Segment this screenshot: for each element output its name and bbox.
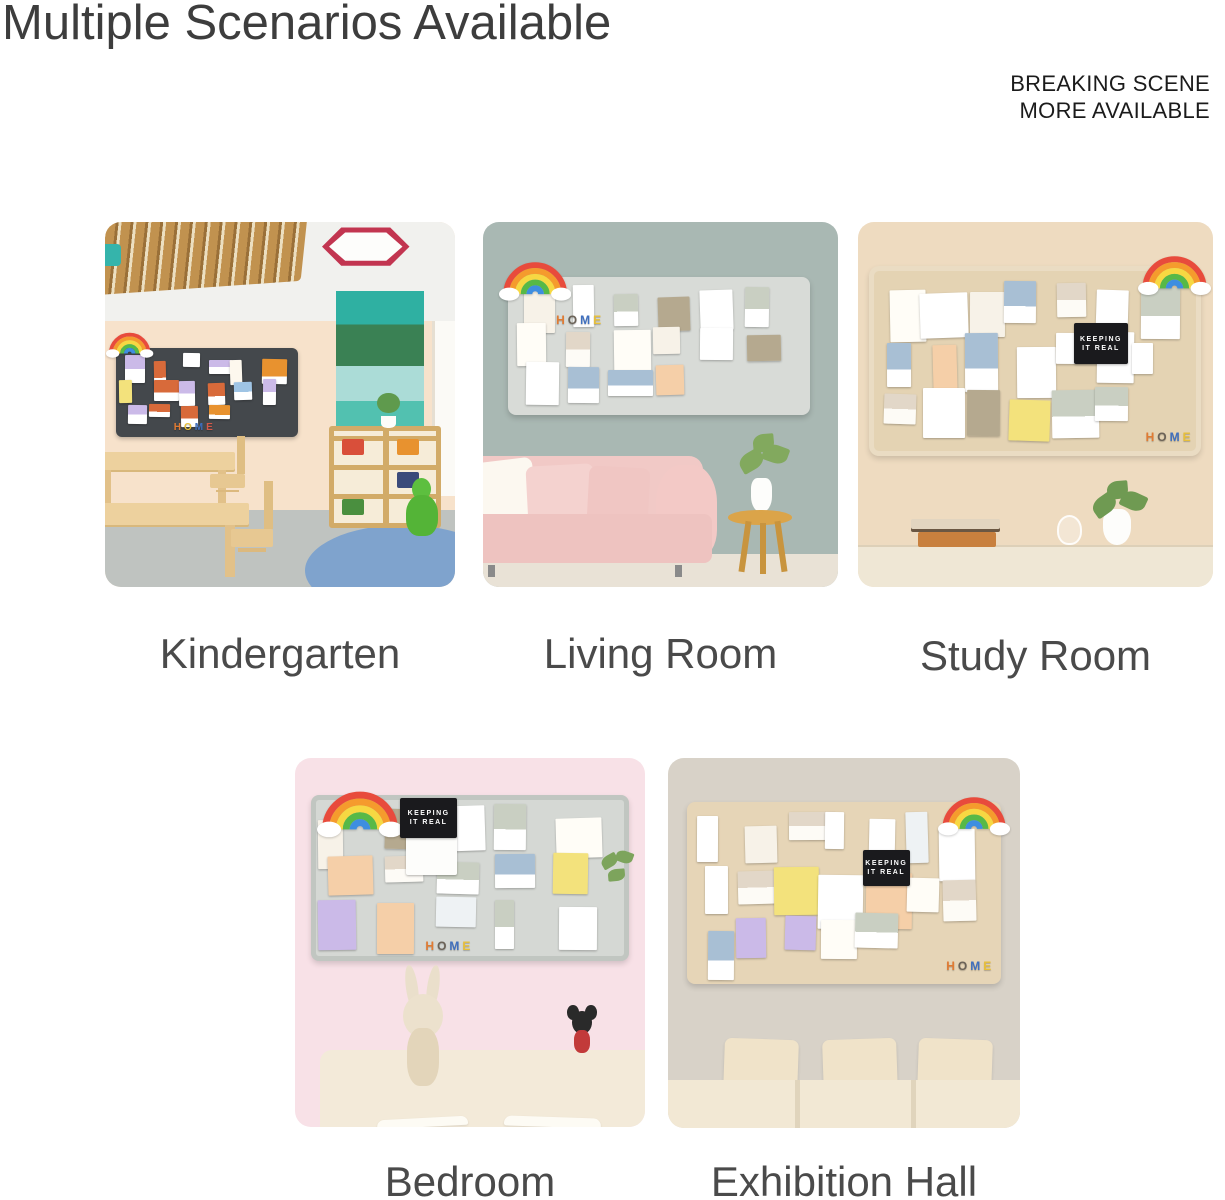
plant-leaf [608,869,626,882]
pinned-card [526,362,560,405]
toy-car-red [342,439,364,455]
sofa-seat [483,514,712,563]
shelf-divider [383,431,389,522]
sofa-leg [675,565,682,577]
pinned-card [1132,343,1153,374]
pinned-card [965,333,998,392]
desk-surface [858,545,1213,587]
pinned-card [183,353,200,367]
pinned-card [517,323,547,366]
pinned-card [907,877,940,912]
potted-plant [375,406,403,428]
white-pillow [504,1115,602,1127]
bunny-body [407,1028,439,1086]
pinned-card [179,381,195,407]
kids-table [105,503,249,525]
pinned-card [566,332,590,368]
plant-sprig [601,851,639,891]
pinned-card [493,803,526,849]
rainbow-icon [938,790,1010,836]
pinned-card [887,343,911,387]
felt-pin-board: H O M E [116,348,298,437]
scene-label-bedroom: Bedroom [295,1158,645,1200]
pinned-card [1004,281,1036,324]
rainbow-icon [106,328,153,358]
chair-back [264,481,273,528]
pinned-card [939,828,976,881]
white-vase [751,478,772,513]
pinned-card [318,900,357,950]
pink-sofa [483,456,703,573]
toy-car-orange [397,439,419,455]
kids-chair [210,474,245,489]
pinned-card [495,900,514,949]
scene-label-living-room: Living Room [483,630,838,678]
corner-note-line1: BREAKING SCENE [1010,70,1210,97]
white-pillow [376,1115,467,1127]
pinned-card [658,296,691,331]
plant-pot [381,416,397,428]
pinned-card [154,380,179,401]
rainbow-icon [499,255,571,301]
pinned-card [125,355,145,383]
pinned-card [614,330,651,372]
keeping-it-real-card: KEEPING IT REAL [863,850,910,886]
corner-note: BREAKING SCENE MORE AVAILABLE [1010,70,1210,124]
plant-leaves [377,393,399,413]
kids-table [105,452,235,470]
product-collage: Multiple Scenarios Available BREAKING SC… [0,0,1225,1200]
plant-leaf [614,849,634,866]
pinned-card [263,379,276,405]
pinned-card [744,287,769,327]
felt-pin-board: KEEPING IT REAL H O M E [869,266,1201,456]
pinned-card [655,365,684,396]
pinned-card [652,327,679,354]
pinned-card [738,871,777,905]
pinned-card [1095,386,1128,420]
home-letters: H O M E [556,313,601,327]
hexagon-light-inner [329,232,403,260]
pinned-card [942,879,976,921]
book-stack [911,519,1000,532]
pinned-card [923,388,965,438]
pinned-card [735,917,766,958]
pinned-card [1057,283,1086,318]
scene-photo-living-room: H O M E [483,222,838,587]
scene-photo-kindergarten: H O M E [105,222,455,587]
home-letters: H O M E [425,939,470,953]
keeping-it-real-card: KEEPING IT REAL [1074,323,1127,365]
pinned-card [119,380,133,403]
home-letters: H O M E [1146,430,1191,444]
scene-photo-exhibition-hall: KEEPING IT REAL H O M E [668,758,1020,1128]
pinned-card [209,405,230,420]
pinned-card [1141,288,1181,339]
cream-sofa [668,1080,1020,1128]
scene-photo-bedroom: KEEPING IT REAL H O M E [295,758,645,1127]
sofa-leg [488,565,495,577]
pinned-card [855,913,899,949]
glass-ornament [1057,515,1082,545]
book-stack [918,532,996,547]
felt-pin-board: KEEPING IT REAL H O M E [311,795,630,961]
scene-photo-study-room: KEEPING IT REAL H O M E [858,222,1213,587]
bunny-plush [397,965,450,1087]
table-leg [760,523,766,574]
rainbow-icon [1138,249,1211,296]
pinned-card [970,292,1005,337]
pinned-card [608,370,653,396]
pinned-card [435,897,476,928]
bed-headboard [320,1050,646,1127]
pinned-card [708,931,735,980]
mouse-plush [565,1005,600,1053]
toy-car-green [342,499,364,515]
pinned-card [824,812,844,849]
pinned-card [553,853,589,895]
chair-back [237,436,245,474]
pinned-card [1008,399,1050,441]
sofa-seam [795,1080,799,1128]
pinned-card [127,405,146,424]
pinned-card [568,366,599,402]
pinned-card [744,825,777,862]
pinned-card [614,294,638,327]
pinned-card [705,866,728,914]
felt-pin-board: KEEPING IT REAL H O M E [687,802,1000,983]
pinned-card [785,916,816,951]
home-letters: H O M E [174,422,213,433]
pinned-card [1052,390,1100,439]
pinned-card [700,328,733,361]
corner-note-line2: MORE AVAILABLE [1010,97,1210,124]
sofa-seam [911,1080,915,1128]
pinned-card [559,907,597,950]
pinned-card [747,335,782,362]
pinned-card [377,903,414,954]
pinned-card [967,390,1000,436]
mouse-body [574,1030,591,1053]
pinned-card [328,855,374,895]
pinned-card [148,404,169,418]
felt-pin-board: H O M E [508,277,810,416]
rainbow-icon [317,783,403,838]
green-toy-figure [406,478,438,536]
pinned-card [233,382,252,400]
kids-chair [231,529,273,547]
toy-body [406,495,438,536]
pinned-card [821,919,858,958]
scene-label-study-room: Study Room [858,632,1213,680]
pinned-card [495,854,535,888]
page-title: Multiple Scenarios Available [2,0,611,50]
pinned-card [207,382,225,404]
pinned-card [774,867,819,916]
pinned-card [919,292,969,339]
pinned-card [697,816,718,862]
home-letters: H O M E [946,959,991,973]
scene-label-kindergarten: Kindergarten [105,630,455,678]
keeping-it-real-card: KEEPING IT REAL [400,798,457,838]
pinned-card [883,393,916,424]
teal-corner-light [105,244,121,266]
pinned-card [699,289,734,331]
pinned-card [932,345,957,394]
scene-label-exhibition-hall: Exhibition Hall [668,1158,1020,1200]
